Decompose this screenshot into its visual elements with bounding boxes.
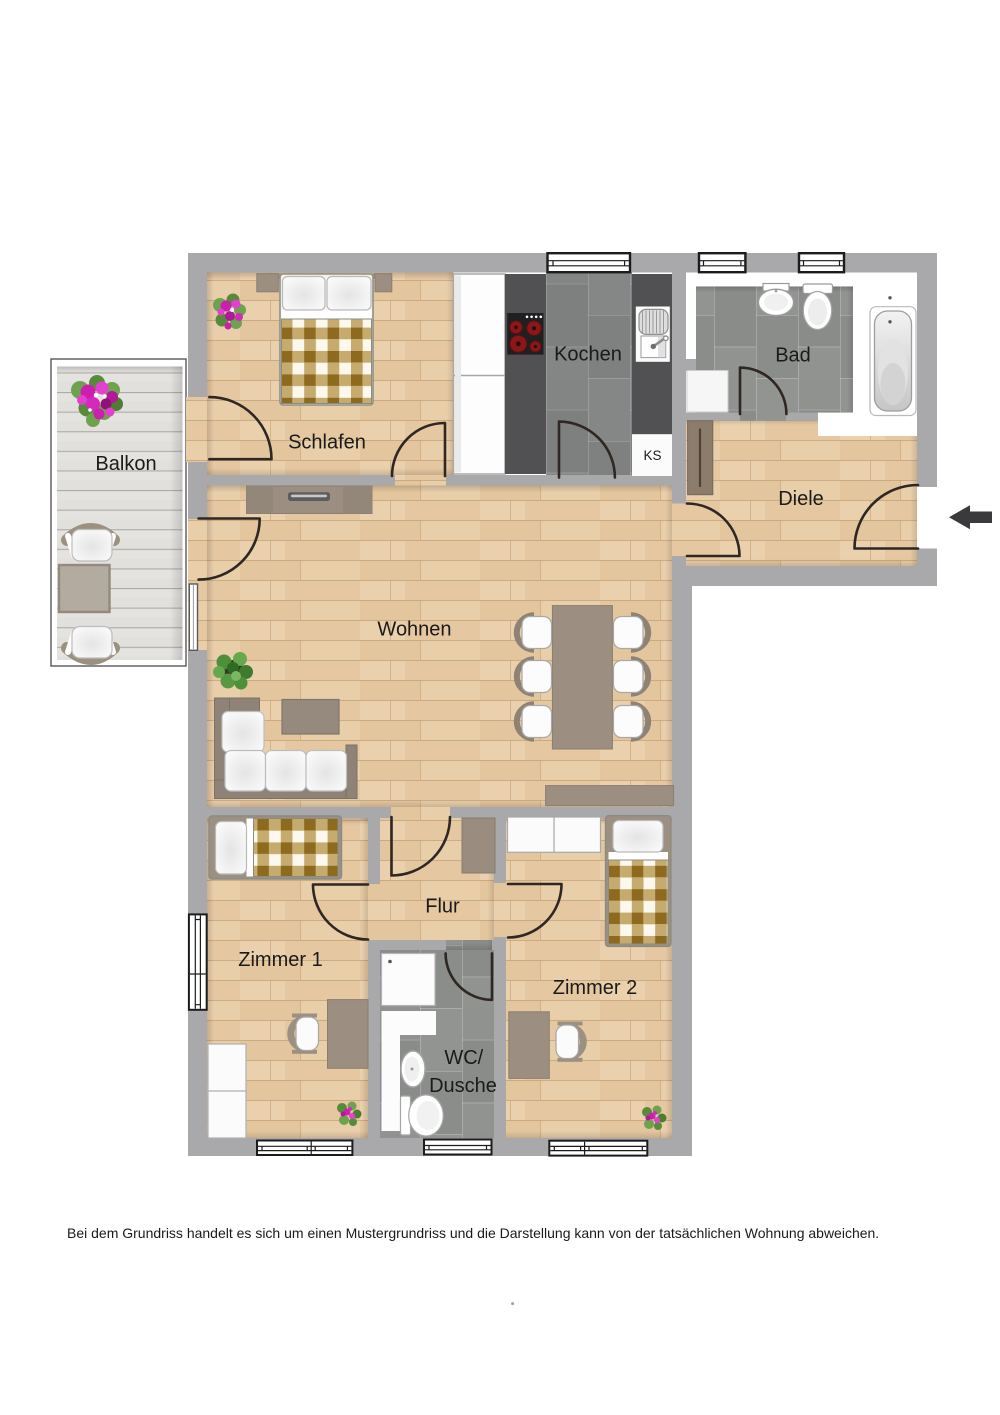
svg-text:Zimmer 2: Zimmer 2 xyxy=(553,977,637,999)
svg-text:WC/: WC/ xyxy=(444,1047,483,1069)
svg-text:Bad: Bad xyxy=(775,345,811,367)
svg-text:Wohnen: Wohnen xyxy=(377,619,451,641)
svg-text:Schlafen: Schlafen xyxy=(288,432,366,454)
svg-text:Zimmer 1: Zimmer 1 xyxy=(238,949,322,971)
svg-text:Dusche: Dusche xyxy=(429,1075,497,1097)
svg-text:Flur: Flur xyxy=(425,896,460,918)
svg-text:Bei dem Grundriss handelt es s: Bei dem Grundriss handelt es sich um ein… xyxy=(67,1225,879,1241)
svg-text:Balkon: Balkon xyxy=(95,453,156,475)
svg-text:KS: KS xyxy=(643,448,661,463)
svg-text:Diele: Diele xyxy=(778,488,824,510)
svg-text:Kochen: Kochen xyxy=(554,344,622,366)
